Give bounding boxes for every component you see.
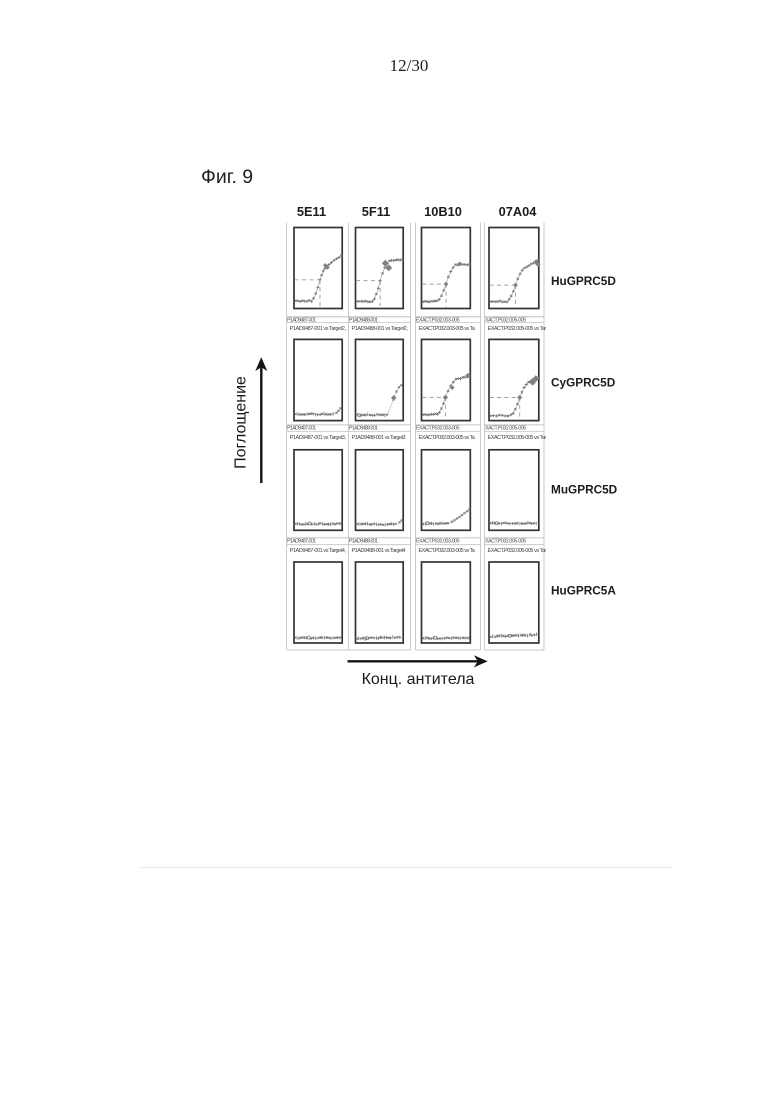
svg-text:XACT.P032.005-005: XACT.P032.005-005 <box>485 426 526 432</box>
svg-text:XACT.P032.005-005: XACT.P032.005-005 <box>485 539 526 545</box>
svg-text:MuGPRC5D: MuGPRC5D <box>551 483 618 497</box>
svg-text:Поглощение: Поглощение <box>233 376 250 469</box>
svg-text:Фиг. 9: Фиг. 9 <box>201 166 253 188</box>
svg-text:CyGPRC5D: CyGPRC5D <box>551 376 616 390</box>
svg-text:12/30: 12/30 <box>390 56 429 75</box>
svg-text:EXACT.P032.003-005 vs Ta: EXACT.P032.003-005 vs Ta <box>419 326 476 332</box>
svg-text:EXACT.P032.003-005 vs Ta: EXACT.P032.003-005 vs Ta <box>419 435 476 441</box>
svg-text:XACT.P032.005-005: XACT.P032.005-005 <box>485 317 526 323</box>
svg-text:EXACT.P032.003-005: EXACT.P032.003-005 <box>416 426 460 432</box>
svg-text:5F11: 5F11 <box>362 204 390 219</box>
svg-text:P1AD9488-001: P1AD9488-001 <box>349 317 378 323</box>
svg-text:EXACT.P032.005-005 vs Tar: EXACT.P032.005-005 vs Tar <box>488 548 547 554</box>
svg-text:P1AD9487-001: P1AD9487-001 <box>287 317 316 323</box>
svg-text:P1AD9487-001 vs Target3,: P1AD9487-001 vs Target3, <box>290 435 347 441</box>
svg-text:HuGPRC5A: HuGPRC5A <box>551 584 616 598</box>
svg-text:10B10: 10B10 <box>424 204 462 219</box>
svg-text:Конц. антитела: Конц. антитела <box>362 671 475 688</box>
svg-text:P1AD9487-001: P1AD9487-001 <box>287 539 316 545</box>
svg-text:P1AD9488-001: P1AD9488-001 <box>349 539 378 545</box>
svg-text:P1AD9488-001 vs Target2,: P1AD9488-001 vs Target2, <box>352 326 409 332</box>
svg-text:P1AD9487-001 vs Target2,: P1AD9487-001 vs Target2, <box>290 326 347 332</box>
svg-text:P1AD9488-001 vs Target3: P1AD9488-001 vs Target3 <box>352 435 406 441</box>
svg-text:EXACT.P032.003-005 vs Ta: EXACT.P032.003-005 vs Ta <box>419 548 476 554</box>
svg-text:EXACT.P032.005-005 vs Tar: EXACT.P032.005-005 vs Tar <box>488 326 547 332</box>
svg-text:P1AD9487-001 vs Target4,: P1AD9487-001 vs Target4, <box>290 548 347 554</box>
svg-text:07A04: 07A04 <box>499 204 538 219</box>
svg-text:EXACT.P032.003-005: EXACT.P032.003-005 <box>416 317 460 323</box>
svg-text:P1AD9487-001: P1AD9487-001 <box>287 426 316 432</box>
svg-text:EXACT.P032.003-005: EXACT.P032.003-005 <box>416 539 460 545</box>
svg-text:P1AD9488-001: P1AD9488-001 <box>349 426 378 432</box>
svg-text:EXACT.P032.005-005 vs Tar: EXACT.P032.005-005 vs Tar <box>488 435 547 441</box>
svg-text:HuGPRC5D: HuGPRC5D <box>551 274 616 288</box>
svg-text:P1AD9488-001 vs Target4: P1AD9488-001 vs Target4 <box>352 548 406 554</box>
svg-text:5E11: 5E11 <box>297 204 326 219</box>
